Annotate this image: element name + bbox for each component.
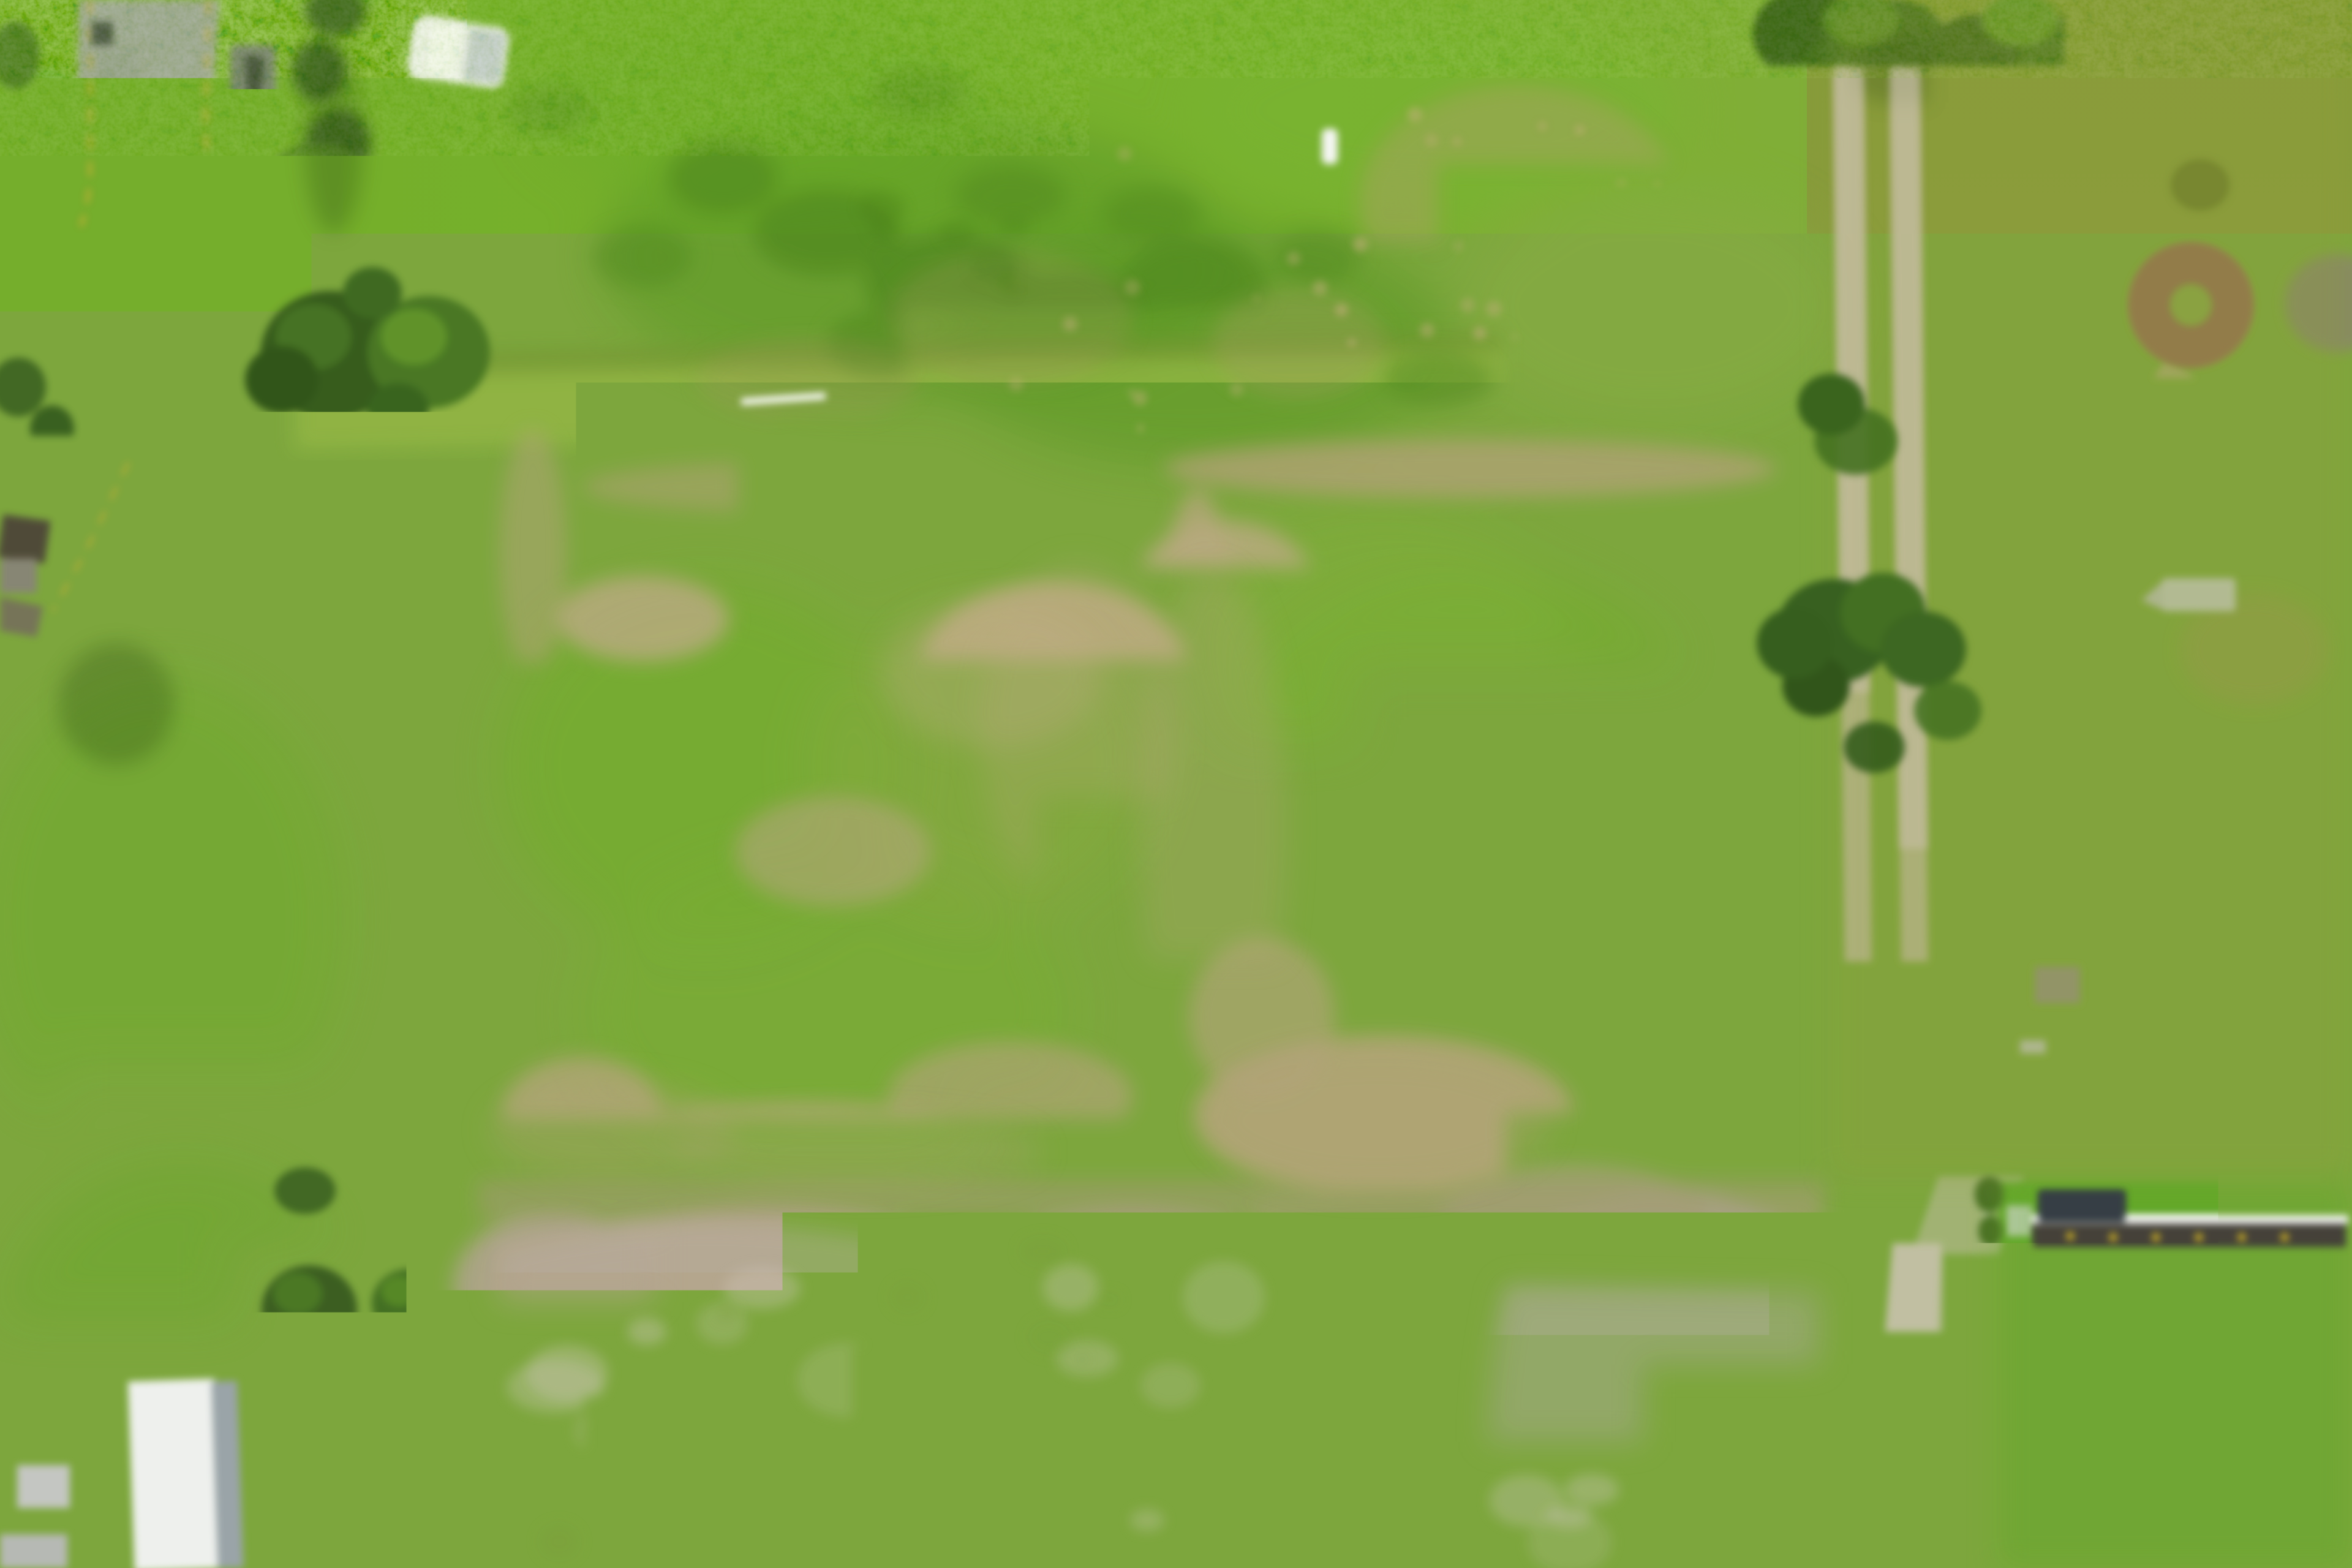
svg-text:Boundary line indicative only: Boundary line indicative only <box>45 1494 441 1529</box>
